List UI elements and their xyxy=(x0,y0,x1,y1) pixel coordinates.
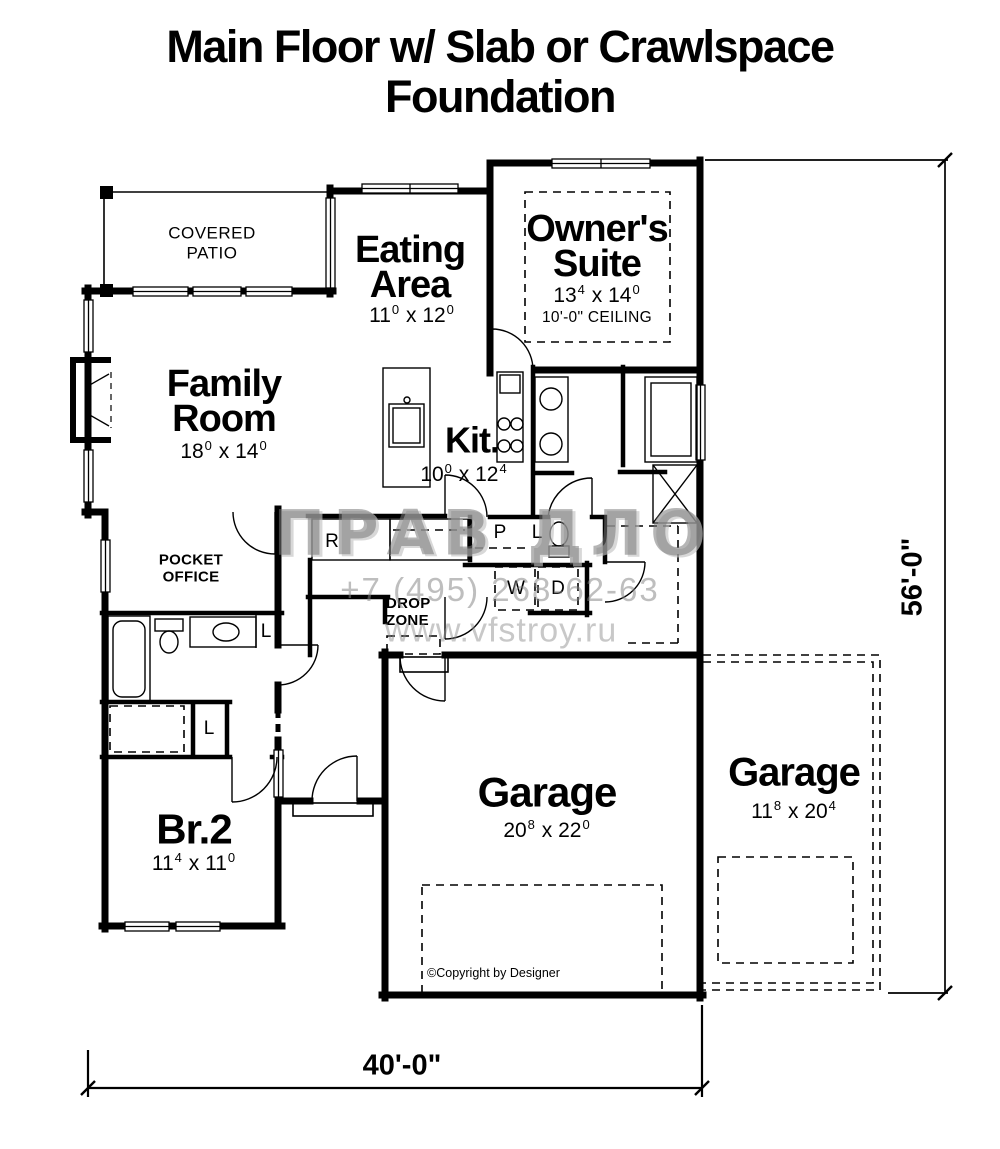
garage-optional-dimensions: 118 x 204 xyxy=(751,800,837,824)
kitchen-label: Kit. xyxy=(445,423,499,456)
washer-label: W xyxy=(507,578,525,600)
patio-posts xyxy=(100,186,113,297)
pocket-office-label: POCKET OFFICE xyxy=(159,553,223,586)
page-title-line1: Main Floor w/ Slab or Crawlspace xyxy=(0,22,1000,72)
bath2-fixtures xyxy=(108,615,256,702)
kitchen-dimensions: 100 x 124 xyxy=(420,463,507,487)
page-title-line2: Foundation xyxy=(0,72,1000,122)
family-room-dimensions: 180 x 140 xyxy=(180,440,267,464)
pantry-label: P xyxy=(494,522,507,544)
linen-bath2-label: L xyxy=(261,621,272,643)
overall-width-dimension: 40'-0" xyxy=(363,1050,442,1083)
linen-closet-label: L xyxy=(204,718,215,740)
bedroom2-dimensions: 114 x 110 xyxy=(152,852,236,876)
eating-area-label: Eating Area xyxy=(355,233,465,303)
eating-area-dimensions: 110 x 120 xyxy=(369,304,455,328)
covered-patio-label: COVERED PATIO xyxy=(168,223,256,262)
owners-suite-dimensions: 134 x 140 xyxy=(553,284,640,308)
garage-main-dimensions: 208 x 220 xyxy=(503,819,590,843)
overall-depth-dimension: 56'-0" xyxy=(897,538,930,617)
garage-main-label: Garage xyxy=(478,774,617,813)
copyright-note: ©Copyright by Designer xyxy=(427,966,560,980)
garage-optional-label: Garage xyxy=(728,755,860,792)
owners-suite-label: Owner's Suite xyxy=(526,212,667,282)
family-room-label: Family Room xyxy=(167,367,281,437)
fridge-label: R xyxy=(325,531,339,553)
owners-bath-fixtures xyxy=(535,377,697,557)
linen-powder-label: L xyxy=(532,522,543,544)
range-counter xyxy=(497,372,523,462)
page-title: Main Floor w/ Slab or Crawlspace Foundat… xyxy=(0,22,1000,121)
dryer-label: D xyxy=(551,578,565,600)
bedroom2-label: Br.2 xyxy=(156,811,231,850)
owners-suite-ceiling-note: 10'-0" CEILING xyxy=(542,309,652,327)
drop-zone-label: DROP ZONE xyxy=(386,596,431,629)
fireplace xyxy=(73,360,111,440)
floor-plan-page: Main Floor w/ Slab or Crawlspace Foundat… xyxy=(0,0,1000,1149)
